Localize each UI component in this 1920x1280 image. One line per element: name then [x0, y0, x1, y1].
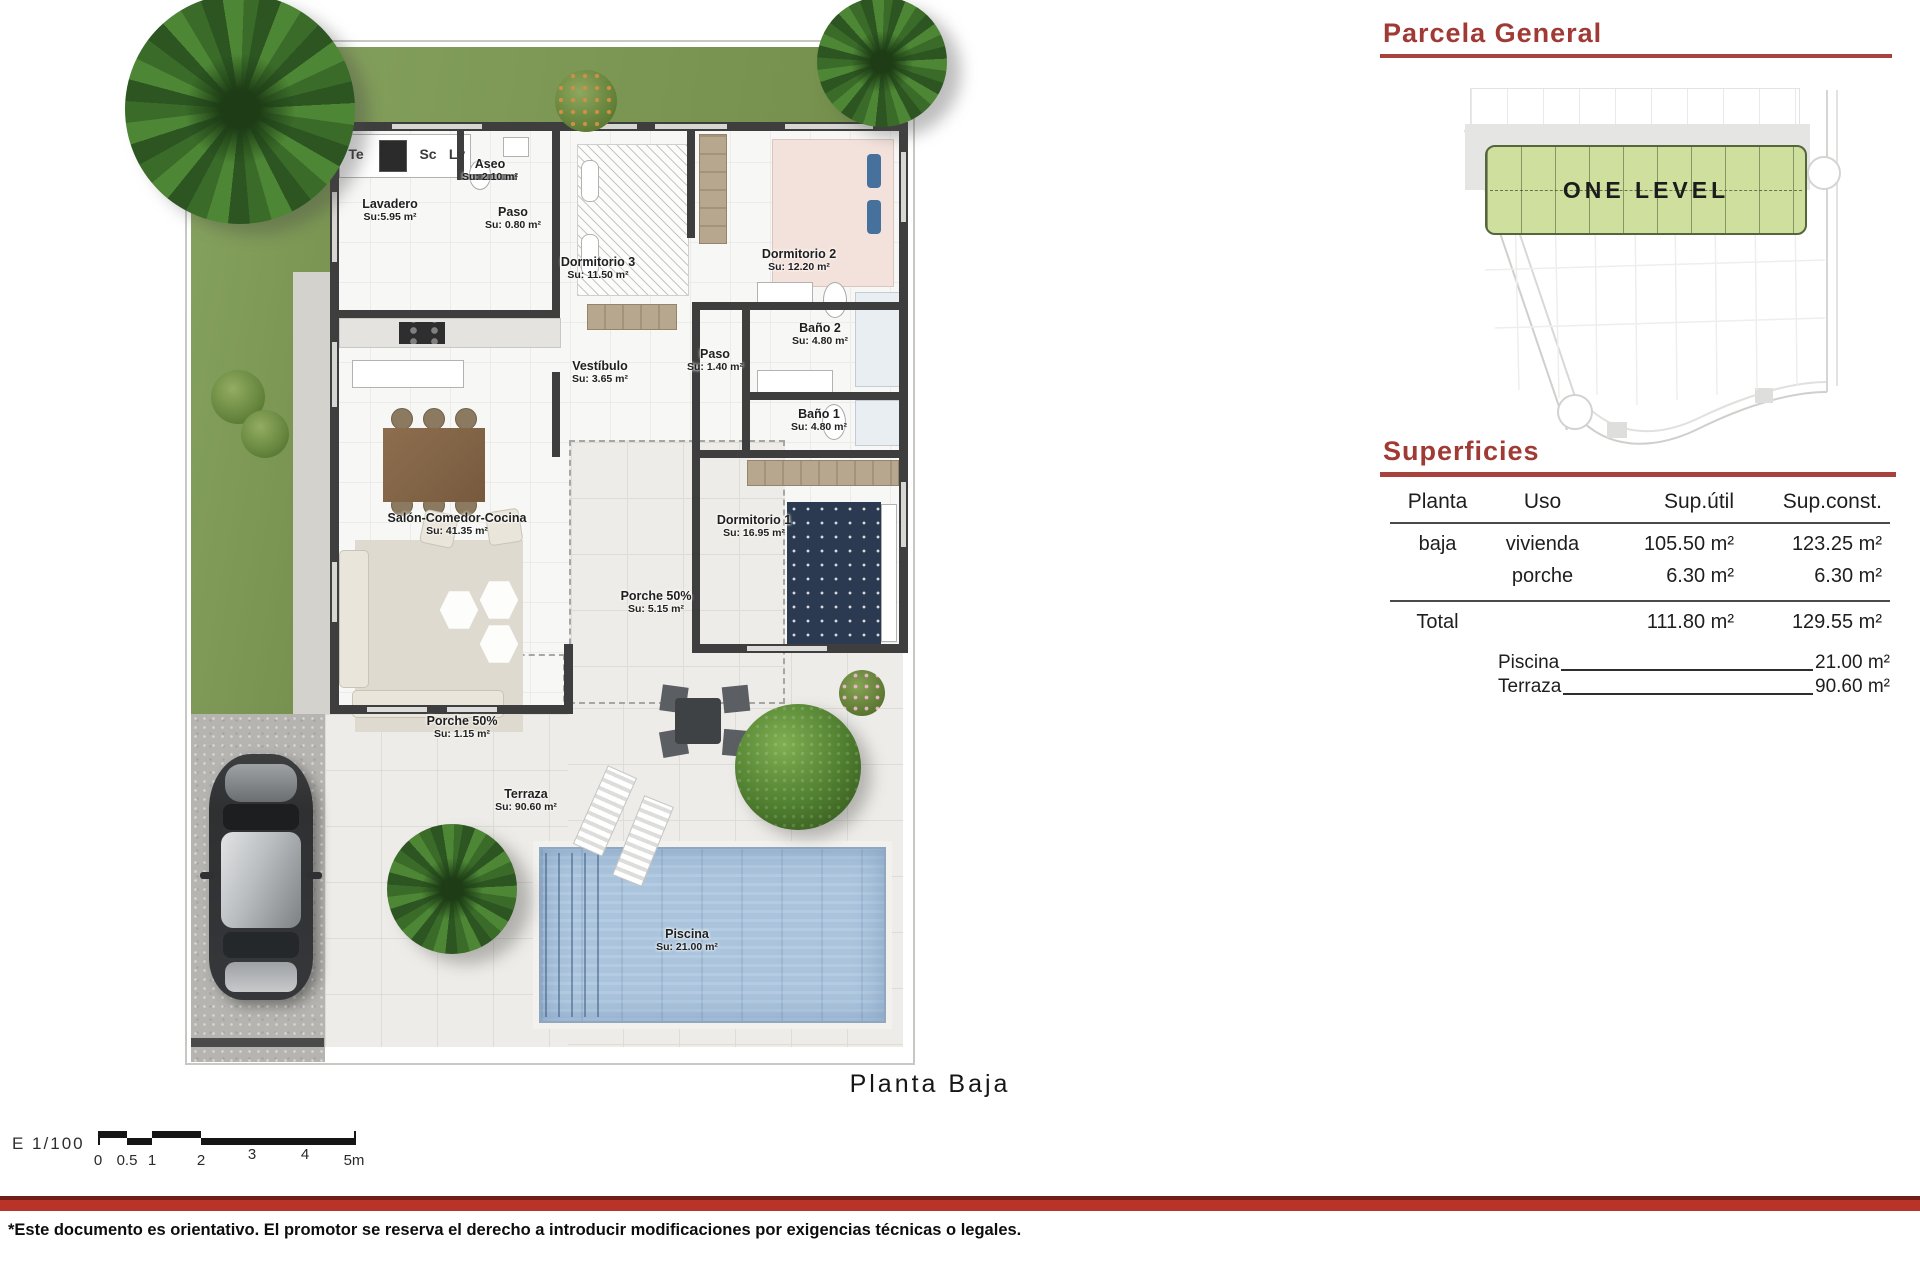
footer-divider	[0, 1196, 1920, 1211]
palm-tree	[817, 0, 947, 127]
room-label-aseo: Aseo Su: 2.10 m²	[430, 157, 550, 183]
window	[901, 482, 906, 547]
parcela-underline	[1380, 54, 1892, 58]
window	[332, 562, 337, 622]
scale-label: E 1/100	[12, 1134, 85, 1154]
cell-total-util: 111.80 m²	[1600, 602, 1742, 634]
room-label-paso1: Paso Su: 0.80 m²	[453, 205, 573, 231]
scale-tick-label: 4	[288, 1146, 322, 1163]
col-header-sup-util: Sup.útil	[1600, 490, 1742, 520]
car-rear-window	[223, 932, 299, 958]
scale-tick	[354, 1131, 356, 1145]
cell-uso: porche	[1485, 556, 1600, 588]
site-plan-phase-block: ONE LEVEL	[1485, 145, 1807, 235]
sliding-door	[747, 646, 827, 651]
dining-chair	[391, 408, 413, 430]
col-header-planta: Planta	[1390, 490, 1485, 520]
scale-segment	[100, 1131, 127, 1138]
patio-table	[675, 698, 721, 744]
wall-lavadero-salon	[330, 310, 560, 318]
car-mirror	[307, 872, 322, 879]
table-row: porche 6.30 m² 6.30 m²	[1390, 556, 1890, 600]
cell-empty	[1485, 602, 1600, 634]
wardrobe	[699, 134, 727, 244]
wardrobe	[747, 460, 899, 486]
bush	[241, 410, 289, 458]
superficies-table: Planta Uso Sup.útil Sup.const. baja vivi…	[1390, 490, 1890, 638]
scale-tick-label: 2	[184, 1152, 218, 1169]
boundary-wall	[191, 1038, 324, 1047]
cell-util: 105.50 m²	[1600, 524, 1742, 556]
plan-sheet: Te Sc Lv	[0, 0, 1920, 1280]
pillow	[881, 504, 897, 642]
tree	[735, 704, 861, 830]
extra-row-piscina: Piscina 21.00 m²	[1498, 652, 1890, 674]
room-label-terraza: Terraza Su: 90.60 m²	[466, 787, 586, 813]
extra-value: 21.00 m²	[1815, 652, 1890, 674]
room-label-dorm2: Dormitorio 2 Su: 12.20 m²	[739, 247, 859, 273]
cooktop-icon	[399, 322, 445, 344]
wall-porch-pillar	[564, 644, 573, 714]
pillow	[867, 154, 881, 188]
superficies-underline	[1380, 472, 1896, 477]
window	[655, 124, 727, 129]
sink	[503, 137, 529, 157]
kitchen-island	[352, 360, 464, 388]
cell-util: 6.30 m²	[1600, 556, 1742, 588]
wall-dorm2-bano2	[692, 302, 908, 310]
car-mirror	[200, 872, 215, 879]
cell-total-label: Total	[1390, 602, 1485, 634]
palm-tree	[387, 824, 517, 954]
oven-icon	[379, 140, 407, 172]
leader-line	[1563, 693, 1813, 695]
cell-total-const: 129.55 m²	[1742, 602, 1890, 634]
wall-bano1-dorm1	[692, 450, 908, 458]
col-header-sup-const: Sup.const.	[1742, 490, 1890, 520]
site-plan-zone-label: ONE LEVEL	[1563, 177, 1729, 204]
car	[209, 754, 313, 1000]
pool-steps	[545, 853, 607, 1017]
toilet	[823, 282, 847, 318]
table-header-row: Planta Uso Sup.útil Sup.const.	[1390, 490, 1890, 524]
scale-segment	[127, 1138, 152, 1145]
sofa	[339, 550, 369, 688]
window	[785, 124, 873, 129]
parcela-title: Parcela General	[1383, 18, 1602, 49]
pillow	[581, 160, 599, 202]
cell-planta: baja	[1390, 524, 1485, 556]
scale-tick-label: 3	[235, 1146, 269, 1163]
room-label-dorm3: Dormitorio 3 Su: 11.50 m²	[538, 255, 658, 281]
site-plan: ONE LEVEL	[1455, 60, 1855, 470]
double-sink	[757, 370, 833, 394]
floor-plan: Te Sc Lv	[185, 40, 915, 1065]
room-label-piscina: Piscina Su: 21.00 m²	[627, 927, 747, 953]
car-trunk	[225, 962, 297, 992]
room-label-porche-salon: Porche 50% Su: 5.15 m²	[596, 589, 716, 615]
table-total-row: Total 111.80 m² 129.55 m²	[1390, 600, 1890, 638]
scale-segment	[201, 1138, 354, 1145]
room-label-salon: Salón-Comedor-Cocina Su: 41.35 m²	[372, 511, 542, 537]
cell-const: 6.30 m²	[1742, 556, 1890, 588]
dining-chair	[455, 408, 477, 430]
scale-segment	[152, 1131, 201, 1138]
flower-bush	[839, 670, 885, 716]
superficies-title: Superficies	[1383, 436, 1540, 467]
scale-tick-label: 5m	[337, 1152, 371, 1169]
patio-chair	[722, 685, 751, 714]
window	[332, 342, 337, 407]
room-label-lavadero: Lavadero Su:5.95 m²	[330, 197, 450, 223]
car-windshield	[223, 804, 299, 830]
extra-value: 90.60 m²	[1815, 676, 1890, 698]
extra-row-terraza: Terraza 90.60 m²	[1498, 676, 1890, 698]
cell-const: 123.25 m²	[1742, 524, 1890, 556]
room-label-dorm1: Dormitorio 1 Su: 16.95 m²	[694, 513, 814, 539]
dining-chair	[423, 408, 445, 430]
footer-disclaimer: *Este documento es orientativo. El promo…	[8, 1221, 1021, 1240]
extra-label: Terraza	[1498, 676, 1561, 698]
wall-bano2-bano1	[742, 392, 908, 400]
room-label-bano1: Baño 1 Su: 4.80 m²	[759, 407, 879, 433]
room-label-porche-lateral: Porche 50% Su: 1.15 m²	[402, 714, 522, 740]
scale-bar	[98, 1131, 356, 1145]
kitchen-counter	[339, 318, 561, 348]
cell-uso: vivienda	[1485, 524, 1600, 556]
room-label-paso2: Paso Su: 1.40 m²	[655, 347, 775, 373]
room-label-vestibulo: Vestíbulo Su: 3.65 m²	[540, 359, 660, 385]
scale-tick-label: 1	[135, 1152, 169, 1169]
site-plan-upper-parcels	[1470, 88, 1800, 128]
site-plan-culdesac	[1807, 156, 1841, 190]
cell-planta	[1390, 556, 1485, 588]
leader-line	[1561, 669, 1813, 671]
dining-table	[383, 428, 485, 502]
wall-paso-banos	[742, 302, 750, 458]
room-label-bano2: Baño 2 Su: 4.80 m²	[760, 321, 880, 347]
table-row: baja vivienda 105.50 m² 123.25 m²	[1390, 524, 1890, 556]
pillow	[867, 200, 881, 234]
car-roof	[221, 832, 301, 928]
plan-caption: Planta Baja	[790, 1070, 1070, 1099]
palm-tree	[125, 0, 355, 224]
wall-dorm3-dorm2	[687, 126, 695, 238]
window	[392, 124, 482, 129]
window	[901, 152, 906, 222]
extra-label: Piscina	[1498, 652, 1559, 674]
shrub	[555, 70, 617, 132]
sliding-door	[447, 707, 497, 712]
bench	[587, 304, 677, 330]
sliding-door	[367, 707, 427, 712]
wall-vestibulo-paso	[692, 302, 700, 458]
car-hood	[225, 764, 297, 802]
entry-path	[293, 272, 330, 714]
col-header-uso: Uso	[1485, 490, 1600, 520]
